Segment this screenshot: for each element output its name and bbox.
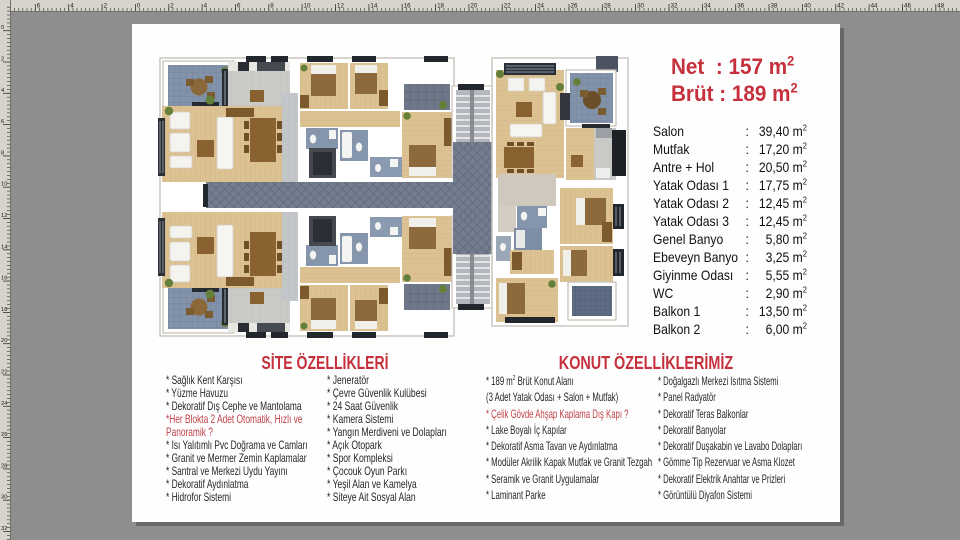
svg-text:14: 14 (1, 244, 8, 250)
svg-text:10: 10 (1, 182, 7, 188)
svg-text:32: 32 (671, 2, 678, 9)
svg-text:48: 48 (937, 2, 944, 9)
svg-text:2: 2 (1, 57, 4, 63)
svg-text:20: 20 (470, 2, 477, 9)
svg-text:0: 0 (1, 25, 4, 31)
svg-text:40: 40 (804, 2, 811, 9)
svg-text:2: 2 (104, 2, 108, 9)
svg-text:28: 28 (604, 2, 611, 9)
svg-text:30: 30 (637, 2, 644, 9)
svg-text:22: 22 (504, 2, 511, 9)
svg-text:46: 46 (904, 2, 911, 9)
svg-text:0: 0 (137, 2, 141, 9)
svg-text:4: 4 (204, 2, 208, 9)
svg-text:42: 42 (837, 2, 844, 9)
svg-text:26: 26 (1, 432, 7, 438)
svg-text:26: 26 (571, 2, 578, 9)
svg-text:4: 4 (70, 2, 74, 9)
svg-text:18: 18 (437, 2, 444, 9)
svg-text:30: 30 (1, 495, 7, 501)
svg-text:20: 20 (1, 338, 7, 344)
svg-text:28: 28 (1, 463, 7, 469)
svg-text:22: 22 (1, 370, 7, 376)
svg-text:24: 24 (1, 401, 8, 407)
svg-text:6: 6 (237, 2, 241, 9)
svg-text:34: 34 (704, 2, 711, 9)
svg-text:16: 16 (404, 2, 411, 9)
svg-text:6: 6 (37, 2, 41, 9)
svg-text:18: 18 (1, 307, 7, 313)
svg-text:2: 2 (170, 2, 174, 9)
svg-text:38: 38 (771, 2, 778, 9)
svg-text:24: 24 (537, 2, 544, 9)
svg-text:8: 8 (1, 150, 4, 156)
svg-text:12: 12 (337, 2, 344, 9)
svg-text:16: 16 (1, 276, 7, 282)
svg-text:10: 10 (304, 2, 311, 9)
svg-text:12: 12 (1, 213, 7, 219)
svg-text:32: 32 (1, 526, 7, 532)
svg-text:6: 6 (1, 119, 4, 125)
svg-text:8: 8 (270, 2, 274, 9)
svg-text:14: 14 (370, 2, 377, 9)
svg-text:44: 44 (871, 2, 878, 9)
svg-text:36: 36 (737, 2, 744, 9)
